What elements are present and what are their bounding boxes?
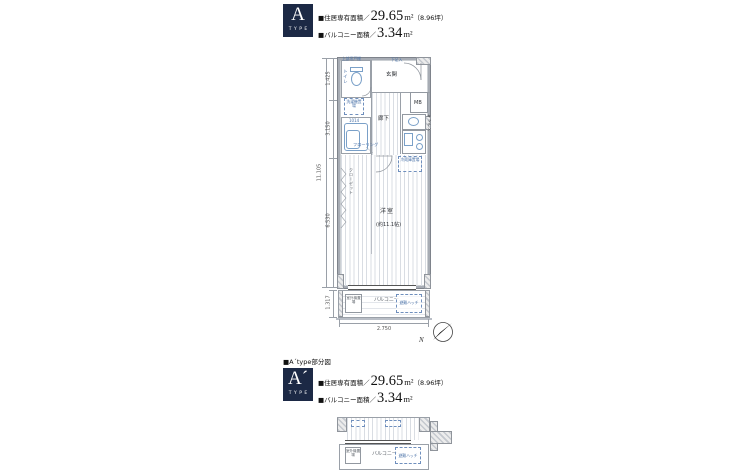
area-note: （8.96坪）: [413, 12, 447, 22]
type-a2-area-line: ■住居専有面積／ 29.65 m² （8.96坪）: [318, 374, 447, 389]
dim-label-d2: 3.150: [326, 109, 333, 149]
partial-cabinet-1: [351, 420, 365, 427]
type-a2-balcony-line: ■バルコニー面積／ 3.34 m²: [318, 391, 413, 406]
balcony-prefix: ■バルコニー面積／: [318, 394, 376, 404]
dim-tick: [329, 158, 337, 159]
balcony-prefix: ■バルコニー面積／: [318, 29, 376, 39]
north-arrow-icon: [422, 318, 456, 348]
type-a-badge-letter: A: [283, 4, 313, 26]
type-a-badge: A TYPE: [283, 4, 313, 37]
partial-cabinet-2: [385, 420, 401, 427]
partial-wall-right: [419, 417, 430, 432]
balcony-value: 3.34: [377, 391, 402, 406]
area-note: （8.96坪）: [413, 377, 447, 387]
closet-folding-door-icon: [341, 168, 346, 228]
type-a2-badge-type: TYPE: [283, 391, 313, 396]
floor-plan: トイレ 上部吊戸棚 玄関 下足入 MB 洗濯機置場 1014 廊下 キッチン 冷…: [336, 56, 436, 326]
area-value: 29.65: [371, 374, 404, 389]
balcony-value: 3.34: [377, 26, 402, 41]
door-arcs: [336, 56, 432, 324]
partial-wall-step-h: [430, 431, 452, 444]
partial-plan: バルコニー 避難ハッチ 室外機置場: [337, 413, 457, 470]
balcony-unit: m²: [403, 394, 412, 404]
partial-hatch-label: 避難ハッチ: [396, 453, 420, 459]
area-unit: m²: [404, 377, 413, 387]
partial-balcony-label: バルコニー: [372, 450, 397, 457]
dim-chain-line: [333, 58, 334, 288]
type-a2-badge: A´ TYPE: [283, 368, 313, 401]
partial-outdoor-unit-label: 室外機置場: [346, 449, 361, 458]
type-a-badge-type: TYPE: [283, 27, 313, 32]
dim-width-line: [339, 323, 429, 324]
area-value: 29.65: [371, 9, 404, 24]
balcony-unit: m²: [403, 29, 412, 39]
dim-tick: [339, 319, 340, 327]
area-unit: m²: [404, 12, 413, 22]
dim-label-total: 11.105: [317, 153, 324, 193]
dim-label-width: 2.750: [364, 326, 404, 333]
area-prefix: ■住居専有面積／: [318, 377, 370, 387]
type-a2-badge-letter: A´: [283, 368, 313, 390]
type-a-balcony-line: ■バルコニー面積／ 3.34 m²: [318, 26, 413, 41]
type-a2-heading: ■A´type部分図: [283, 356, 331, 366]
dim-label-d1: 1.425: [326, 59, 333, 99]
dim-label-balcony: 1.317: [326, 283, 333, 323]
dim-balcony-line: [333, 290, 334, 318]
partial-wall-left: [337, 417, 347, 432]
dim-label-d3: 6.530: [326, 201, 333, 241]
north-label: N: [419, 336, 424, 344]
area-prefix: ■住居専有面積／: [318, 12, 370, 22]
page-canvas: A TYPE ■住居専有面積／ 29.65 m² （8.96坪） ■バルコニー面…: [0, 0, 730, 470]
dim-tick: [329, 100, 337, 101]
type-a-area-line: ■住居専有面積／ 29.65 m² （8.96坪）: [318, 9, 447, 24]
